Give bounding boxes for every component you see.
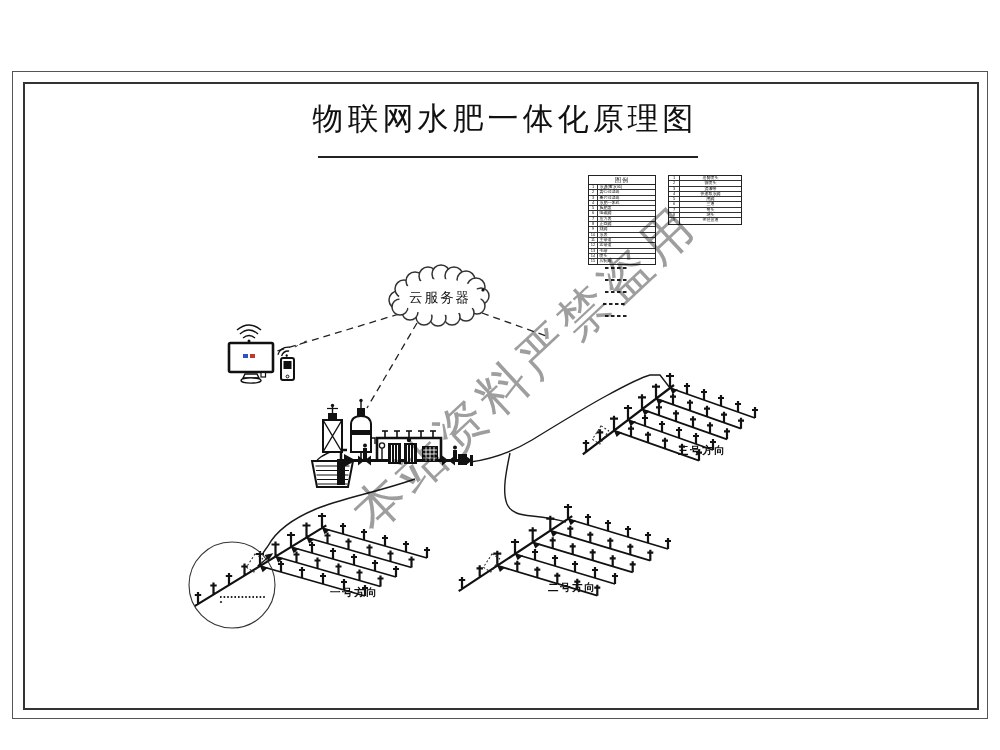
field-1-label: 一号方向 <box>330 586 378 598</box>
link-cloud-to-controller <box>367 323 417 408</box>
outlet-assembly <box>442 446 473 467</box>
diagram-canvas: 云服务器 <box>0 0 1000 750</box>
pipe-to-field-1 <box>263 479 415 553</box>
screen-pixel-blue <box>243 354 248 358</box>
field-3-label: 三号方向 <box>678 444 726 456</box>
cloud-dot <box>481 288 484 291</box>
link-cloud-to-field <box>482 313 549 337</box>
drawing-page: 物联网水肥一体化原理图 图例 1水源(蓄水池)2离心过滤器3叠片过滤器4水肥一体… <box>0 0 1000 750</box>
comm-links <box>274 313 549 408</box>
fertigation-equipment <box>312 399 473 487</box>
flow-meter-icon <box>422 446 438 462</box>
pressure-gauge-icon <box>379 443 384 460</box>
screen-pixel-red <box>250 354 255 358</box>
pipe-to-field-2 <box>505 453 566 522</box>
legend-line-samples <box>603 268 628 316</box>
detail-callout-circle <box>189 542 275 628</box>
pipe-to-field-3 <box>470 375 670 462</box>
pc-monitor-icon <box>229 325 273 383</box>
irrigation-field-3 <box>583 373 758 461</box>
irrigation-field-1 <box>195 513 430 606</box>
fertilizer-tank-b-icon <box>351 399 375 452</box>
cloud-server-label: 云服务器 <box>409 290 471 305</box>
fertilizer-tank-a-icon <box>323 404 342 452</box>
cloud-server-icon: 云服务器 <box>389 265 489 326</box>
link-cloud-to-pc <box>274 314 399 352</box>
field-2-label: 二号方向 <box>548 581 596 593</box>
wifi-icon <box>237 325 261 338</box>
